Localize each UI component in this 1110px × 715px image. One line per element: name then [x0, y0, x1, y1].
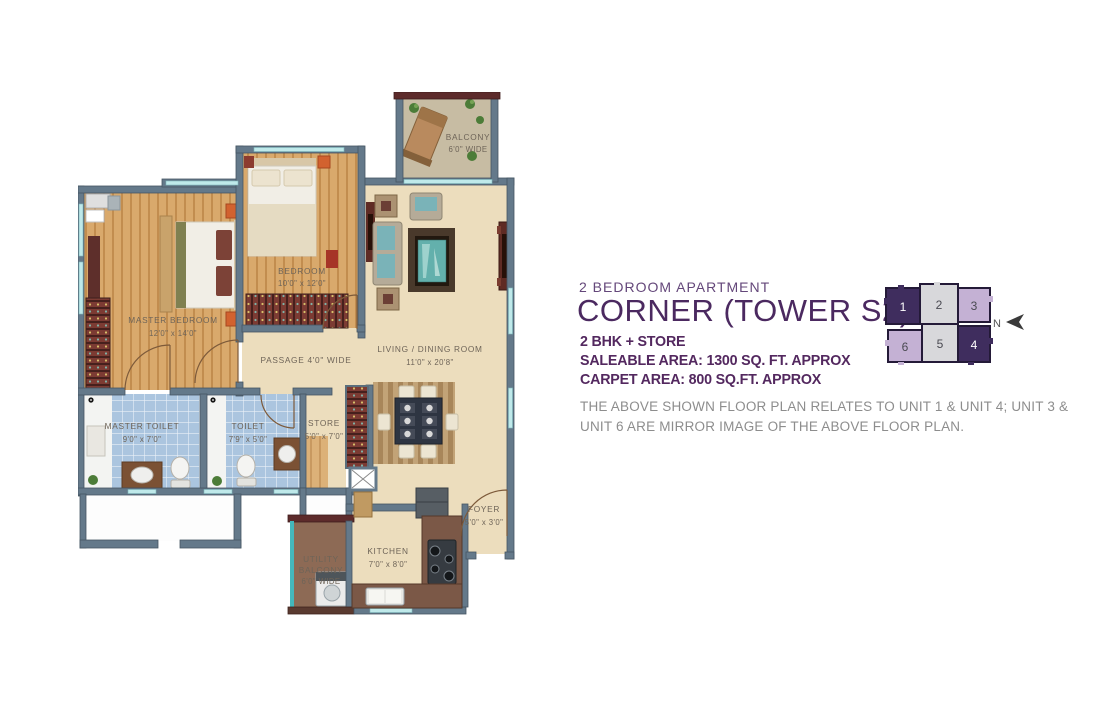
plant-highlight	[470, 100, 474, 104]
service-void	[86, 495, 234, 541]
wc-tank	[171, 480, 190, 488]
sofa-cushion	[377, 254, 395, 278]
chair-icon	[378, 414, 390, 430]
side-table-inset	[383, 294, 393, 304]
utility-parapet	[288, 515, 354, 522]
wardrobe-icon	[86, 298, 110, 388]
living-dining-label: LIVING / DINING ROOM	[377, 344, 482, 354]
cabinet-icon	[354, 492, 372, 517]
spec-block: 2 BHK + STORE SALEABLE AREA: 1300 SQ. FT…	[580, 332, 850, 389]
plant-icon	[409, 103, 419, 113]
wall-rug-icon	[88, 236, 100, 298]
console-knob	[497, 278, 501, 286]
sink-bowl	[386, 590, 401, 603]
keyplan-unit-3-number: 3	[971, 299, 978, 313]
utility-label-1: UTILITY	[303, 554, 339, 564]
tower-key-plan: 1 2 3 6 5 4 N	[884, 282, 1034, 366]
passage-label: PASSAGE 4'0" WIDE	[261, 355, 352, 365]
chair-icon	[421, 386, 436, 399]
bedroom-label: BEDROOM	[278, 266, 326, 276]
pillow-icon	[284, 170, 312, 186]
pillow-icon	[216, 266, 232, 296]
window-icon	[509, 288, 513, 334]
pillow-icon	[252, 170, 280, 186]
plant-highlight	[414, 104, 418, 108]
plant-icon	[476, 116, 484, 124]
window-icon	[370, 609, 412, 613]
store-wood-inset	[304, 436, 328, 490]
north-arrow-icon	[1006, 314, 1024, 330]
bed-bench-icon	[160, 216, 172, 312]
armchair-cushion	[415, 197, 437, 211]
console-inset	[368, 214, 373, 250]
mirror-note-line-1: THE ABOVE SHOWN FLOOR PLAN RELATES TO UN…	[580, 397, 1068, 417]
balcony-slider-icon	[404, 180, 492, 184]
headboard-icon	[248, 158, 316, 166]
living-dining-size: 11'0" x 20'8"	[406, 358, 453, 367]
bedroom-size: 10'0" x 12'0"	[278, 279, 326, 288]
spec-carpet-area: CARPET AREA: 800 SQ.FT. APPROX	[580, 370, 850, 389]
chair-icon	[399, 386, 414, 399]
chair-icon	[399, 445, 414, 458]
nightstand-icon	[318, 156, 330, 168]
plant-icon	[88, 475, 98, 485]
console-knob	[497, 226, 501, 234]
dresser-icon	[326, 250, 338, 268]
spec-saleable-area: SALEABLE AREA: 1300 SQ. FT. APPROX	[580, 351, 850, 370]
window-icon	[254, 148, 344, 152]
master-toilet-label: MASTER TOILET	[105, 421, 180, 431]
chair-icon	[446, 414, 458, 430]
shelf-icon	[87, 426, 105, 456]
store-label: STORE	[308, 418, 340, 428]
side-table-inset	[381, 201, 391, 211]
master-bedroom-size: 12'0" x 14'0"	[149, 329, 197, 338]
washer-door	[324, 585, 340, 601]
service-void-small	[304, 492, 348, 518]
balcony-parapet	[394, 92, 500, 99]
window-icon	[166, 181, 238, 185]
wc-tank	[237, 478, 256, 486]
fridge-icon	[416, 488, 448, 518]
utility-label-2: BALCONY	[299, 565, 344, 575]
plant-icon	[212, 476, 222, 486]
foyer-size: 5'0" x 3'0"	[465, 518, 504, 527]
door-stop-center	[90, 399, 92, 401]
wardrobe-icon	[246, 294, 348, 328]
keyplan-unit-2-number: 2	[936, 298, 943, 312]
window-icon	[509, 388, 513, 428]
nightstand-icon	[244, 156, 254, 168]
foyer-label: FOYER	[468, 504, 500, 514]
mirror-note-line-2: UNIT 6 ARE MIRROR IMAGE OF THE ABOVE FLO…	[580, 417, 1068, 437]
utility-label-3: 6'0" WIDE	[301, 577, 340, 586]
vent-window-icon	[128, 490, 156, 494]
keyplan-unit-5-number: 5	[937, 337, 944, 351]
north-label: N	[993, 318, 1001, 330]
bed-runner-icon	[176, 222, 186, 308]
balcony-label: BALCONY	[446, 132, 491, 142]
wc-icon	[171, 457, 189, 479]
floor-plan: MASTER BEDROOM 12'0" x 14'0" BEDROOM 10'…	[78, 92, 520, 622]
wc-icon	[237, 455, 255, 477]
sofa-cushion	[377, 226, 395, 250]
washbasin-icon	[279, 446, 296, 463]
toilet-size: 7'9" x 5'0"	[229, 435, 268, 444]
kitchen-size: 7'0" x 8'0"	[369, 560, 408, 569]
utility-window-strip	[290, 521, 294, 609]
balcony-size: 6'0" WIDE	[448, 145, 487, 154]
sink-bowl	[369, 590, 384, 603]
keyplan-unit-4-number: 4	[971, 338, 978, 352]
toilet-label: TOILET	[231, 421, 264, 431]
blanket-icon	[248, 204, 316, 256]
mirror-note: THE ABOVE SHOWN FLOOR PLAN RELATES TO UN…	[580, 397, 1068, 437]
door-stop-center	[212, 399, 214, 401]
utility-bottom-wall	[288, 607, 354, 614]
vent-window-icon	[274, 490, 298, 494]
master-toilet-size: 9'0" x 7'0"	[123, 435, 162, 444]
desk-icon	[86, 194, 110, 208]
brochure-page: { "header": { "subtitle": "2 BEDROOM APA…	[0, 0, 1110, 715]
keyplan-unit-6-number: 6	[902, 340, 909, 354]
desk-chair-icon	[108, 196, 120, 210]
desk-papers-icon	[86, 210, 104, 222]
store-size: 5'0" x 7'0"	[305, 432, 344, 441]
dining-furniture	[373, 382, 458, 464]
page-title: CORNER (TOWER S2)	[577, 293, 910, 329]
crockery-cabinet-icon	[346, 386, 368, 468]
vent-window-icon	[204, 490, 232, 494]
washbasin-icon	[131, 467, 153, 483]
keyplan-unit-1-number: 1	[900, 300, 907, 314]
plant-icon	[465, 99, 475, 109]
window-icon	[79, 204, 83, 256]
window-icon	[79, 262, 83, 314]
master-bedroom-label: MASTER BEDROOM	[128, 315, 218, 325]
spec-bhk: 2 BHK + STORE	[580, 332, 850, 351]
pillow-icon	[216, 230, 232, 260]
chair-icon	[421, 445, 436, 458]
kitchen-label: KITCHEN	[367, 546, 408, 556]
